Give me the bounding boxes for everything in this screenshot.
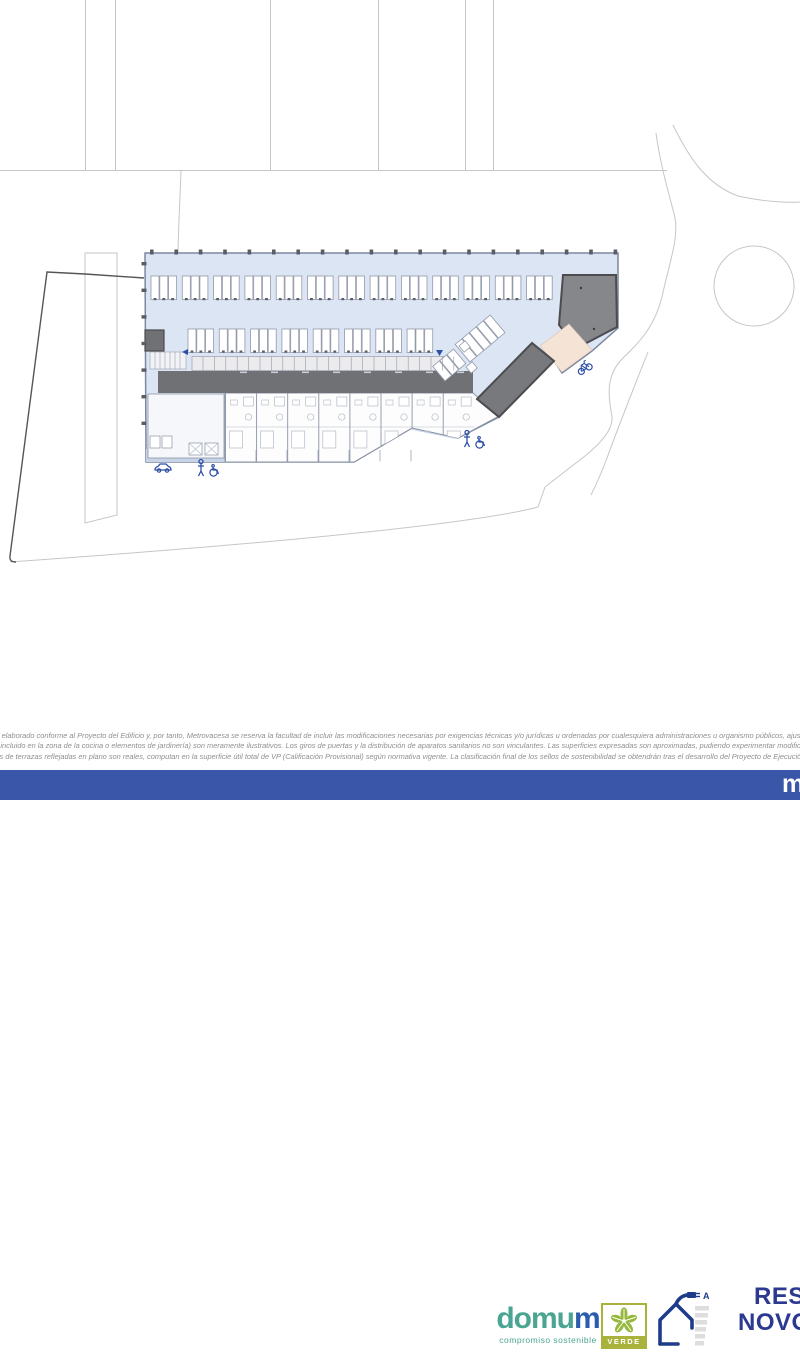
parking-stall — [407, 329, 415, 353]
stall-mark — [319, 298, 322, 300]
stall-mark — [427, 351, 430, 353]
parking-stall — [385, 329, 393, 353]
parking-stall — [370, 276, 378, 300]
bed — [323, 431, 336, 448]
column-tick — [370, 250, 374, 255]
stall-mark — [444, 298, 447, 300]
parking-stall — [442, 276, 450, 300]
disclaimer-text: sido elaborado conforme al Proyecto del … — [0, 731, 800, 762]
building — [142, 250, 619, 463]
stall-mark — [271, 351, 274, 353]
parking-stall — [473, 276, 481, 300]
corridor-door — [395, 372, 402, 374]
stall-mark — [240, 351, 243, 353]
parking-stall — [410, 276, 418, 300]
road-curb — [178, 171, 181, 253]
stall-mark — [285, 351, 288, 353]
parking-stall — [313, 329, 321, 353]
column-tick — [142, 395, 147, 398]
bathroom — [368, 397, 378, 406]
column-tick — [272, 250, 276, 255]
stall-mark — [498, 298, 501, 300]
column-tick — [142, 289, 147, 292]
verde-certification-badge: VERDE — [601, 1303, 647, 1349]
corridor-door — [271, 372, 278, 374]
stall-mark — [333, 351, 336, 353]
parking-stall — [308, 276, 316, 300]
stall-mark — [310, 298, 313, 300]
bathroom — [399, 397, 409, 406]
stall-mark — [154, 298, 157, 300]
parking-stall — [294, 276, 302, 300]
parking-stall — [197, 329, 205, 353]
bathroom — [275, 397, 285, 406]
column-tick — [296, 250, 300, 255]
wheelchair-icon — [476, 437, 485, 449]
column-tick — [614, 250, 618, 255]
column-tick — [443, 250, 447, 255]
stall-mark — [171, 298, 174, 300]
column-tick — [418, 250, 422, 255]
stall-mark — [419, 351, 422, 353]
house-outline — [660, 1304, 692, 1344]
stall-mark — [390, 298, 393, 300]
stall-mark — [365, 351, 368, 353]
parking-stall — [325, 276, 333, 300]
residential-title-line1: RES — [738, 1284, 800, 1310]
column-tick — [589, 250, 593, 255]
stall-mark — [404, 298, 407, 300]
parking-stall — [291, 329, 299, 353]
domum-wordmark: domum — [492, 1304, 604, 1334]
column-tick — [321, 250, 325, 255]
stall-mark — [413, 298, 416, 300]
stall-mark — [208, 351, 211, 353]
stall-mark — [216, 298, 219, 300]
bed — [354, 431, 367, 448]
stall-mark — [256, 298, 259, 300]
stall-mark — [538, 298, 541, 300]
metrovacesa-m-logo: m — [782, 770, 800, 799]
bed — [261, 431, 274, 448]
stall-mark — [350, 298, 353, 300]
stall-mark — [325, 351, 328, 353]
car-icon — [155, 464, 171, 472]
corridor-door — [302, 372, 309, 374]
bathroom — [337, 397, 347, 406]
parking-stall — [527, 276, 535, 300]
stall-mark — [378, 351, 381, 353]
road-edge-outer — [673, 125, 800, 202]
column-tick — [142, 368, 147, 371]
parking-stall — [401, 276, 409, 300]
stall-mark — [387, 351, 390, 353]
energy-rating-house-icon: A — [648, 1290, 712, 1354]
bathroom — [306, 397, 316, 406]
parking-stall — [222, 276, 230, 300]
stall-mark — [185, 298, 188, 300]
parking-stall — [182, 276, 190, 300]
parking-stall — [160, 276, 168, 300]
plan-dot — [593, 328, 595, 330]
stall-mark — [302, 351, 305, 353]
column-tick — [565, 250, 569, 255]
parking-stall — [285, 276, 293, 300]
wheelchair-icon — [210, 465, 219, 477]
column-tick — [142, 342, 147, 345]
stall-mark — [422, 298, 425, 300]
column-tick — [142, 315, 147, 318]
domum-tagline: compromiso sostenible — [492, 1335, 604, 1345]
corridor-door — [333, 372, 340, 374]
parking-stall — [214, 276, 222, 300]
parking-stall — [362, 329, 370, 353]
stair-block — [145, 330, 164, 351]
parking-stall — [191, 276, 199, 300]
parking-stall — [464, 276, 472, 300]
corridor-door — [240, 372, 247, 374]
parking-stall — [353, 329, 361, 353]
parking-stall — [200, 276, 208, 300]
stall-mark — [199, 351, 202, 353]
column-tick — [223, 250, 227, 255]
bed — [385, 431, 398, 448]
brochure-page: { "plan": { "title_hint": "residential g… — [0, 0, 800, 800]
plug-cable — [676, 1295, 687, 1304]
stall-mark — [162, 298, 165, 300]
stall-mark — [194, 298, 197, 300]
stall-mark — [293, 351, 296, 353]
stall-mark — [359, 298, 362, 300]
stall-mark — [373, 298, 376, 300]
stall-mark — [328, 298, 331, 300]
column-tick — [516, 250, 520, 255]
parking-stall — [419, 276, 427, 300]
column-tick — [394, 250, 398, 255]
bed — [447, 431, 460, 448]
stall-mark — [279, 298, 282, 300]
energy-scale-bars — [695, 1306, 709, 1346]
stall-mark — [248, 298, 251, 300]
energy-rating-letter: A — [703, 1291, 710, 1301]
disclaimer-line: ario incluido en la zona de la cocina o … — [0, 741, 800, 751]
parking-stall — [388, 276, 396, 300]
parking-stall — [535, 276, 543, 300]
parking-stall — [416, 329, 424, 353]
parking-stall — [276, 276, 284, 300]
domum-prefix: domu — [496, 1302, 574, 1335]
plan-dot — [580, 287, 582, 289]
column-tick — [492, 250, 496, 255]
stall-mark — [410, 351, 413, 353]
column-tick — [142, 262, 147, 265]
disclaimer-line: sido elaborado conforme al Proyecto del … — [0, 731, 800, 741]
domum-logo: domum compromiso sostenible — [492, 1304, 604, 1345]
parking-stall — [322, 329, 330, 353]
stall-mark — [453, 298, 456, 300]
parking-stall — [245, 276, 253, 300]
verde-label: VERDE — [603, 1336, 645, 1347]
column-tick — [174, 250, 178, 255]
residential-title: RES NOVO — [738, 1284, 800, 1336]
domum-suffix: m — [574, 1302, 600, 1335]
column-tick — [199, 250, 203, 255]
stall-mark — [234, 298, 237, 300]
bed — [416, 431, 429, 448]
parking-stall — [450, 276, 458, 300]
parking-stall — [251, 329, 259, 353]
parking-stall — [188, 329, 196, 353]
bed — [292, 431, 305, 448]
storage-band — [192, 357, 455, 371]
stall-mark — [435, 298, 438, 300]
verde-leaf-icon — [608, 1306, 640, 1336]
parking-stall — [169, 276, 177, 300]
column-tick — [150, 250, 154, 255]
stall-mark — [296, 298, 299, 300]
parking-stall — [393, 329, 401, 353]
corridor-door — [364, 372, 371, 374]
stall-mark — [396, 351, 399, 353]
parking-stall — [259, 329, 267, 353]
parking-stall — [425, 329, 433, 353]
column-tick — [345, 250, 349, 255]
disclaimer-line: útiles de terrazas reflejadas en plano s… — [0, 752, 800, 762]
parking-stall — [339, 276, 347, 300]
stall-mark — [225, 298, 228, 300]
stall-mark — [547, 298, 550, 300]
parking-stall — [544, 276, 552, 300]
parking-stall — [513, 276, 521, 300]
plot-boundary — [10, 272, 144, 562]
parking-stall — [331, 329, 339, 353]
parking-stall — [376, 329, 384, 353]
roundabout — [714, 246, 794, 326]
parking-stall — [504, 276, 512, 300]
stall-mark — [262, 351, 265, 353]
parking-stall — [482, 276, 490, 300]
bathroom — [430, 397, 440, 406]
column-tick — [540, 250, 544, 255]
parking-stall — [316, 276, 324, 300]
column-tick — [248, 250, 252, 255]
stall-mark — [316, 351, 319, 353]
bathroom — [244, 397, 254, 406]
parking-stall — [495, 276, 503, 300]
stall-mark — [529, 298, 532, 300]
stall-mark — [265, 298, 268, 300]
stall-mark — [475, 298, 478, 300]
bathroom — [461, 397, 471, 406]
column-tick — [142, 422, 147, 425]
site-plan — [0, 0, 800, 640]
parking-stall — [300, 329, 308, 353]
corridor-band — [158, 371, 473, 393]
parking-stall — [379, 276, 387, 300]
parking-stall — [228, 329, 236, 353]
stall-mark — [484, 298, 487, 300]
stall-mark — [191, 351, 194, 353]
parking-stall — [151, 276, 159, 300]
corridor-door — [457, 372, 464, 374]
footer-logos: domum compromiso sostenible VERDE — [0, 640, 800, 730]
parking-stall — [206, 329, 214, 353]
column-tick — [467, 250, 471, 255]
parking-stall — [237, 329, 245, 353]
path-edge — [591, 352, 648, 495]
corridor-door — [426, 372, 433, 374]
stairs — [150, 352, 186, 369]
bed — [230, 431, 243, 448]
footer-brand-bar: m — [0, 770, 800, 800]
stall-mark — [288, 298, 291, 300]
parking-stall — [345, 329, 353, 353]
parking-stall — [231, 276, 239, 300]
parking-stall — [254, 276, 262, 300]
stall-mark — [347, 351, 350, 353]
plug-icon — [687, 1292, 696, 1298]
parking-stall — [433, 276, 441, 300]
stall-mark — [203, 298, 206, 300]
left-road-strip — [85, 253, 117, 523]
stall-mark — [222, 351, 225, 353]
parking-stall — [219, 329, 227, 353]
parking-stall — [348, 276, 356, 300]
stall-mark — [467, 298, 470, 300]
stall-mark — [516, 298, 519, 300]
stall-mark — [356, 351, 359, 353]
stall-mark — [253, 351, 256, 353]
parking-stall — [282, 329, 290, 353]
parking-stall — [263, 276, 271, 300]
stall-mark — [507, 298, 510, 300]
stall-mark — [231, 351, 234, 353]
parking-stall — [356, 276, 364, 300]
parking-stall — [268, 329, 276, 353]
residential-title-line2: NOVO — [738, 1310, 800, 1336]
stall-mark — [341, 298, 344, 300]
stall-mark — [382, 298, 385, 300]
